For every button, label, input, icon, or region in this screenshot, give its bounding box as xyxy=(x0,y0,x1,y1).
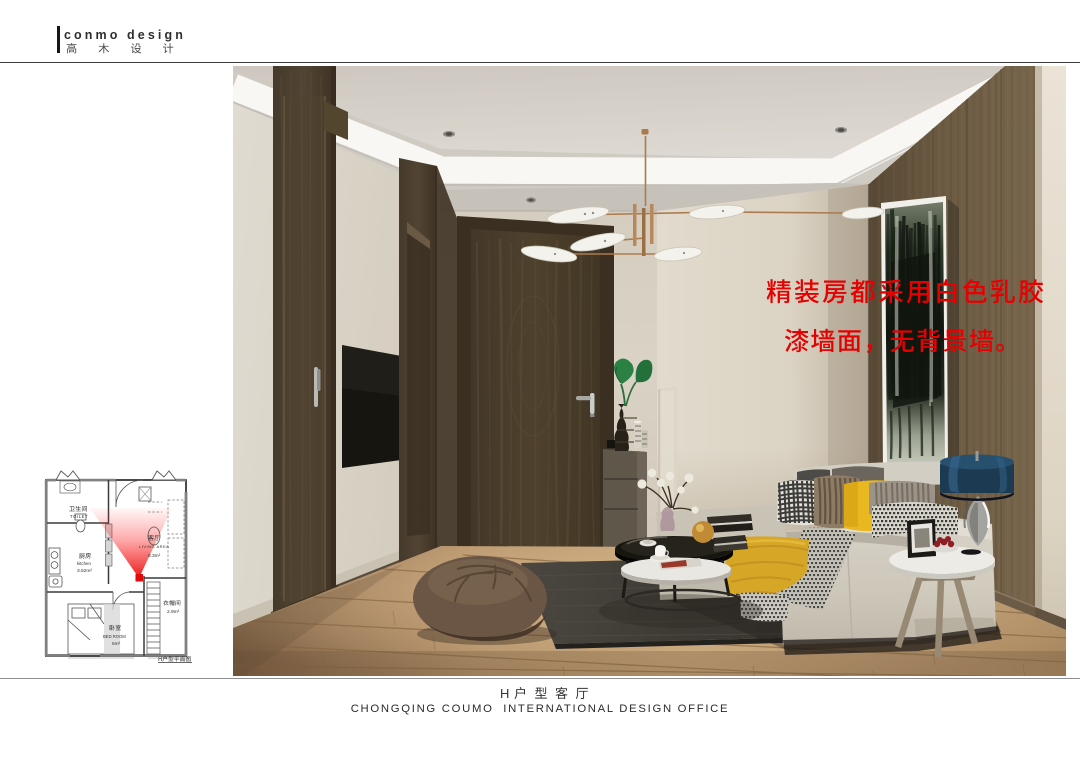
svg-text:6m²: 6m² xyxy=(112,641,121,647)
svg-text:TOILET: TOILET xyxy=(70,514,88,519)
svg-text:kitchen: kitchen xyxy=(77,561,91,566)
svg-text:3.52m²: 3.52m² xyxy=(77,568,92,574)
svg-text:BED ROOM: BED ROOM xyxy=(103,634,126,639)
svg-text:H: H xyxy=(500,686,509,701)
svg-text:2.9m²: 2.9m² xyxy=(167,609,180,615)
svg-text:LIVING AREA: LIVING AREA xyxy=(139,544,169,549)
svg-text:8.3m²: 8.3m² xyxy=(148,553,161,559)
